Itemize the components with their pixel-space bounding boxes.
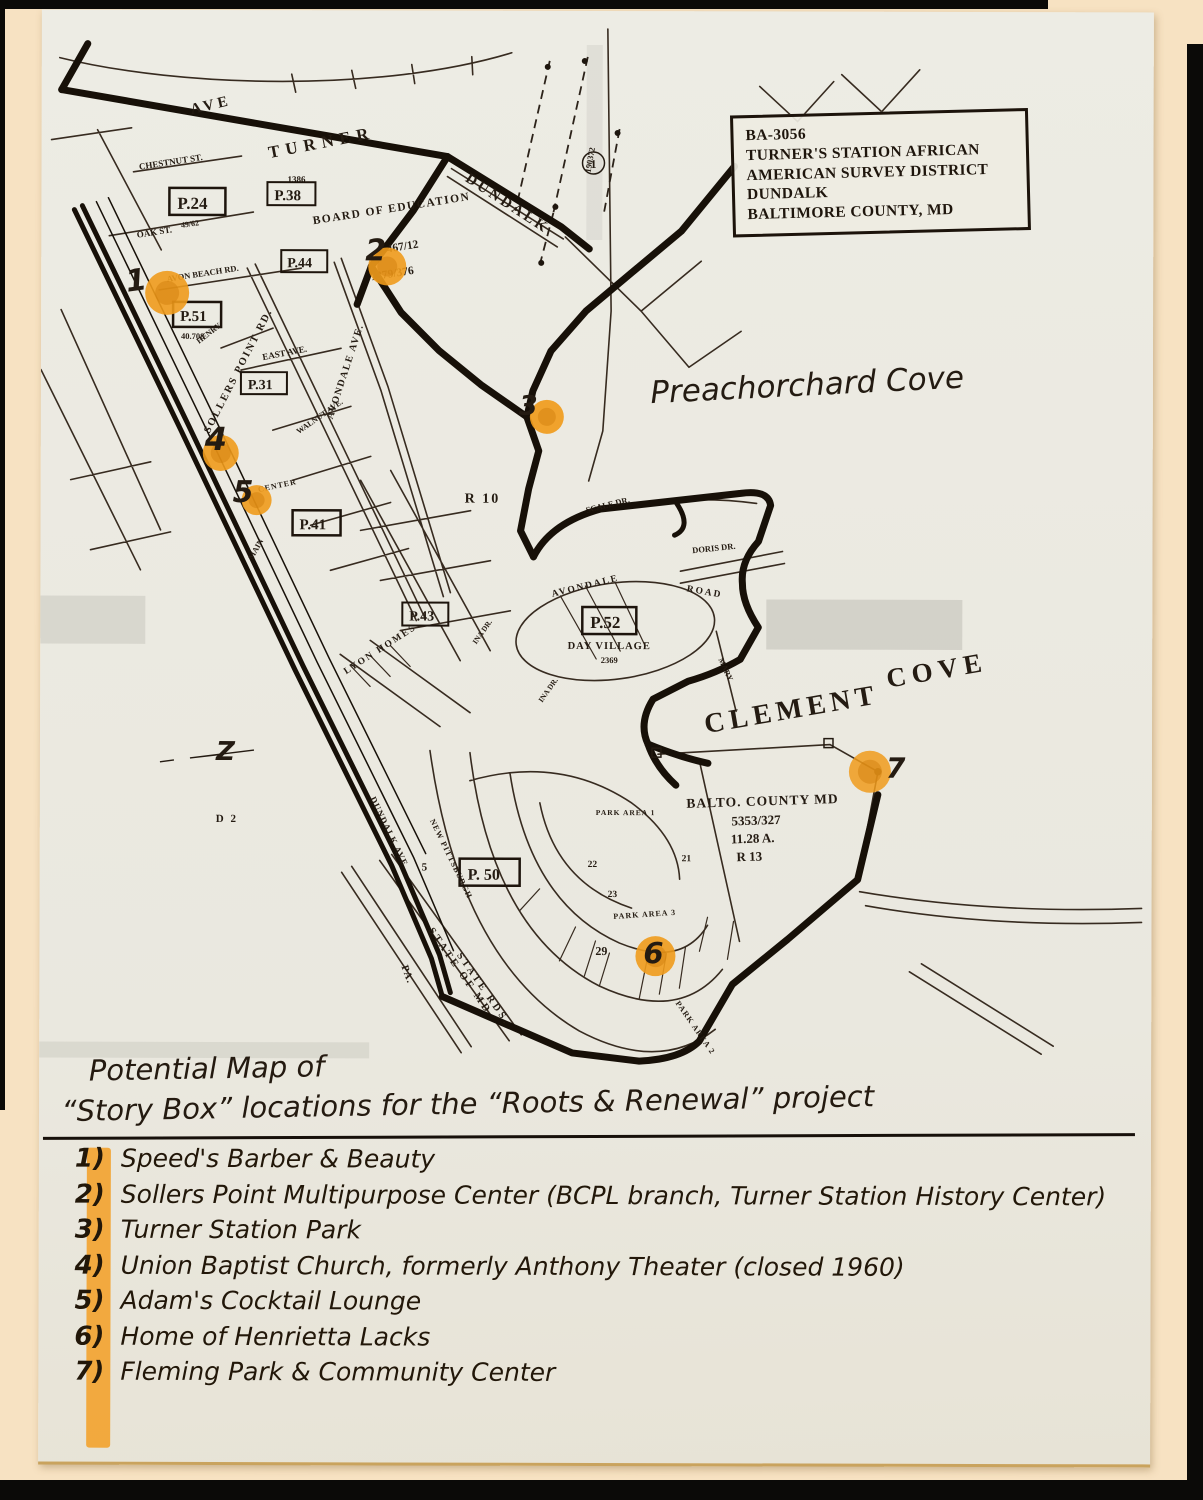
map-label-avondale-road-1: AVONDALE (551, 574, 620, 600)
list-item-label: Turner Station Park (121, 1213, 1138, 1250)
map-labels: AVE TURNER DUNDALK 1386 CHESTNUT ST. OAK… (134, 93, 991, 1057)
list-item-3: 3) Turner Station Park (53, 1213, 1138, 1250)
map-label-r10: R 10 (465, 492, 501, 507)
map-label-circled-1: 1 (590, 157, 596, 171)
map-label-walnut: WALNUT AVE. (295, 397, 345, 435)
list-item-label: Speed's Barber & Beauty (121, 1142, 1138, 1179)
list-item-number: 3) (53, 1213, 121, 1248)
list-item-number: 6) (52, 1319, 120, 1354)
map-label-d2: D 2 (216, 813, 238, 825)
marker-number-7: 7 (886, 752, 906, 785)
map-label-p43: P.43 (409, 610, 434, 625)
map-label-29: 29 (595, 944, 607, 958)
list-item-number: 5) (52, 1284, 120, 1319)
list-item-number: 2) (53, 1177, 121, 1212)
map-label-park-area-3: PARK AREA 3 (613, 908, 676, 921)
scan-edge-bottom (0, 1480, 1203, 1500)
map-label-5: 5 (422, 862, 428, 874)
list-item-4: 4) Union Baptist Church, formerly Anthon… (53, 1248, 1138, 1285)
scanned-document: AVE TURNER DUNDALK 1386 CHESTNUT ST. OAK… (0, 0, 1203, 1500)
map-label-22: 22 (588, 860, 598, 870)
scan-edge-top (0, 0, 1048, 9)
map-label-avondale-road-2: ROAD (686, 584, 723, 600)
scan-edge-right (1187, 44, 1203, 1500)
marker-number-3: 3 (519, 391, 538, 422)
map-label-p50: P. 50 (468, 867, 500, 884)
location-dot-7 (849, 751, 891, 793)
map-label-p31: P.31 (248, 378, 273, 393)
list-item-label: Adam's Cocktail Lounge (120, 1284, 1137, 1321)
map-label-p44: P.44 (287, 256, 312, 271)
list-item-label: Fleming Park & Community Center (120, 1355, 1137, 1392)
title-underline (43, 1133, 1135, 1140)
survey-map-page: AVE TURNER DUNDALK 1386 CHESTNUT ST. OAK… (38, 10, 1154, 1468)
map-label-p51: P.51 (180, 309, 207, 325)
preachorchard-cove-label: Preachorchard Cove (649, 360, 964, 412)
map-label-balto-county: BALTO. COUNTY MD (686, 791, 839, 811)
map-label-p38: P.38 (274, 188, 301, 204)
list-item-6: 6) Home of Henrietta Lacks (52, 1319, 1137, 1356)
location-dot-1 (145, 271, 189, 315)
list-item-number: 7) (52, 1355, 120, 1390)
list-item-number: 1) (53, 1142, 121, 1177)
marker-number-6: 6 (643, 936, 663, 970)
map-label-balto-acreage: 11.28 A. (731, 830, 775, 846)
list-item-label: Union Baptist Church, formerly Anthony T… (121, 1248, 1138, 1285)
page-title: Potential Map of “Story Box” locations f… (60, 1039, 874, 1128)
map-label-scale-dr: SCALE DR. (585, 494, 631, 514)
list-item-7: 7) Fleming Park & Community Center (52, 1355, 1137, 1392)
map-label-balto-r13: R 13 (736, 848, 763, 864)
survey-tie-line (160, 737, 881, 775)
map-label-chestnut: CHESTNUT ST. (138, 152, 203, 172)
list-item-5: 5) Adam's Cocktail Lounge (52, 1284, 1137, 1321)
map-label-lyon-homes: LYON HOMES (342, 623, 418, 677)
marker-number-2: 2 (365, 233, 386, 268)
marker-number-5: 5 (233, 475, 254, 510)
list-item-number: 4) (53, 1248, 121, 1283)
map-label-balto-deed: 5353/327 (731, 812, 781, 829)
map-label-park-area-1: PARK AREA 1 (596, 808, 656, 817)
story-box-location-list: 1) Speed's Barber & Beauty 2) Sollers Po… (52, 1142, 1138, 1394)
map-label-p24: P.24 (177, 194, 208, 213)
map-label-2369: 2369 (601, 655, 618, 665)
marker-number-1: 1 (123, 262, 148, 300)
map-label-clement: CLEMENT (702, 679, 881, 740)
page-title-line2: “Story Box” locations for the “Roots & R… (61, 1079, 874, 1128)
scan-edge-left (0, 0, 5, 1110)
map-label-board-of-education: BOARD OF EDUCATION (312, 191, 471, 227)
survey-district-title-box: BA-3056 TURNER'S STATION AFRICAN AMERICA… (730, 108, 1031, 238)
map-label-day-village: DAY VILLAGE (568, 641, 651, 652)
z-survey-mark: Z (215, 737, 236, 767)
map-label-p41: P.41 (300, 517, 327, 533)
list-item-label: Sollers Point Multipurpose Center (BCPL … (121, 1177, 1138, 1214)
map-label-cove: COVE (884, 647, 990, 694)
map-label-4962: 49/62 (180, 218, 199, 230)
map-label-dundalk-street: DUNDALK (462, 171, 552, 237)
map-label-doris-dr: DORIS DR. (692, 541, 736, 555)
map-label-23: 23 (608, 890, 618, 900)
list-item-2: 2) Sollers Point Multipurpose Center (BC… (53, 1177, 1138, 1214)
map-label-pa: PA. (399, 964, 416, 985)
list-item-label: Home of Henrietta Lacks (120, 1320, 1137, 1357)
marker-number-4: 4 (204, 420, 227, 458)
map-label-21: 21 (682, 854, 692, 864)
list-item-1: 1) Speed's Barber & Beauty (53, 1142, 1138, 1179)
map-label-ina-dr-2: INA DR. (536, 676, 560, 704)
map-label-p52: P.52 (590, 613, 620, 632)
